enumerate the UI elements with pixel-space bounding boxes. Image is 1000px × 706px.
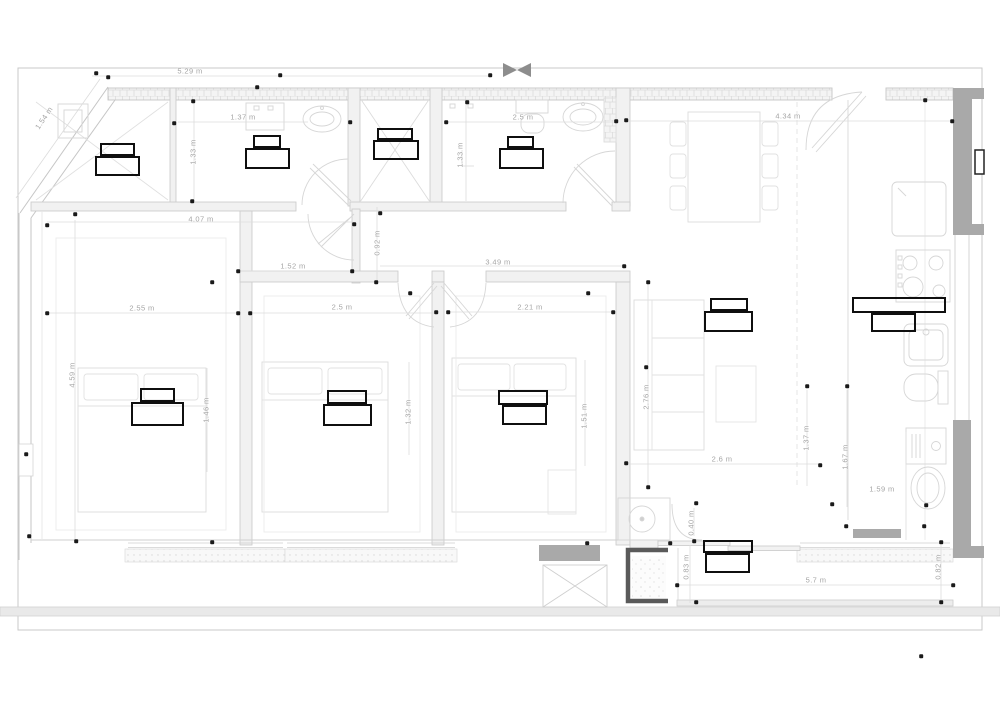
- interior-partitions: [31, 88, 630, 545]
- bed-icon: [78, 368, 206, 512]
- exterior-walls: [19, 87, 953, 560]
- door-swings: [302, 92, 866, 540]
- section-marker-icon: [503, 63, 517, 77]
- electrical-panel-icon: [975, 150, 984, 174]
- toilet-icon: [904, 374, 938, 401]
- toilet-icon: [516, 100, 548, 113]
- shaft-cross: [360, 98, 430, 202]
- desk-icon: [548, 470, 576, 514]
- sink-icon: [563, 103, 603, 131]
- coffee-table-icon: [716, 366, 756, 422]
- stove-icon: [896, 250, 950, 302]
- floor-plan-drawing: [0, 0, 1000, 706]
- floor-plan-canvas: 5.29 m1.54 m1.37 m1.33 m2.5 m1.33 m4.34 …: [0, 0, 1000, 706]
- windows-and-balcony: [31, 540, 953, 606]
- washer-icon: [58, 104, 88, 138]
- dimension-lines: [16, 76, 953, 603]
- bed-icon: [262, 362, 388, 512]
- dining-table-icon: [688, 112, 760, 222]
- closet-brace-lines: [36, 102, 168, 200]
- cistern-icon: [246, 103, 284, 130]
- page-border: [0, 68, 1000, 630]
